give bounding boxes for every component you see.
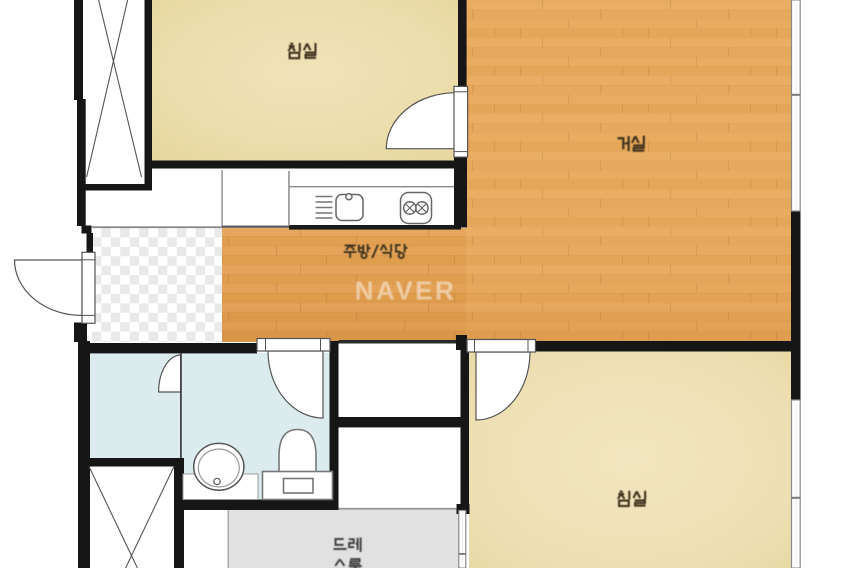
svg-text:NAVER: NAVER: [355, 276, 457, 306]
